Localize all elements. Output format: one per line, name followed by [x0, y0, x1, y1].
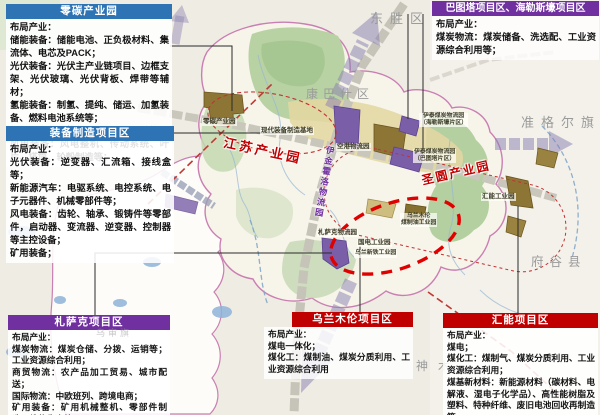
infobox-title: 零碳产业园 — [6, 4, 172, 19]
infobox-equipment-manufacturing: 装备制造项目区 布局产业： 光伏装备：逆变器、汇流箱、接线盒等； 新能源汽车：电… — [6, 126, 174, 263]
site-konggang-shape — [334, 106, 360, 148]
site-label-modern-equipment: 现代装备制造基地 — [260, 127, 314, 135]
industrial-planning-map: 东胜区 康巴什区 准格尔旗 府谷县 神木 乌审旗 江苏产业园 圣圆产业园 伊金霍… — [0, 0, 600, 415]
infobox-huineng: 汇能项目区 布局产业： 煤电； 煤化工：煤制气、煤炭分质利用、工业资源综合利用；… — [443, 313, 598, 415]
site-label-huineng-park: 汇能工业园 — [481, 193, 516, 201]
region-label-kangbashi: 康巴什区 — [306, 85, 374, 102]
infobox-title: 札萨克项目区 — [8, 315, 170, 330]
infobox-zhasake: 札萨克项目区 布局产业： 煤炭物流：煤炭仓储、分拨、运销等；工业资源综合利用； … — [8, 315, 170, 415]
infobox-body: 布局产业： 煤电； 煤化工：煤制气、煤炭分质利用、工业资源综合利用； 煤基新材料… — [443, 328, 598, 415]
infobox-batuta-hailesihao: 巴图塔项目区、海勒斯壕项目区 布局产业： 煤炭物流：煤炭储备、洗选配、工业资源综… — [432, 1, 599, 60]
infobox-wulanmulun: 乌兰木伦项目区 布局产业： 煤电一体化； 煤化工：煤制油、煤炭分质利用、工业资源… — [264, 312, 413, 379]
region-label-wushen: 乌审旗 — [96, 326, 132, 339]
site-label-zhasake-logistics: 札萨克物流园 — [317, 229, 358, 237]
region-label-dongsheng: 东胜区 — [370, 8, 430, 27]
site-label-yitai-hailesihao: 伊泰煤炭物流园 （海勒斯壕片区） — [419, 113, 468, 127]
infobox-title: 装备制造项目区 — [6, 126, 174, 141]
infobox-title: 乌兰木伦项目区 — [292, 312, 413, 327]
site-label-wulanmulun-fuel: 乌兰木伦 煤制油工业园 — [400, 213, 437, 227]
region-label-zhungeer: 准格尔旗 — [521, 112, 600, 131]
infobox-title: 巴图塔项目区、海勒斯壕项目区 — [432, 1, 599, 16]
site-label-lingtan: 零碳产业园 — [202, 118, 237, 126]
site-label-guodian: 国电工业园 — [357, 239, 392, 247]
site-label-yitai-batuta: 伊泰煤炭物流园 （巴图塔片区） — [413, 149, 456, 163]
infobox-body: 布局产业： 煤炭物流：煤炭储备、洗选配、工业资源综合利用等； — [432, 16, 599, 60]
infobox-body: 布局产业： 煤电一体化； 煤化工：煤制油、煤炭分质利用、工业资源综合利用 — [264, 327, 413, 379]
site-label-konggang: 空港物流园 — [336, 143, 371, 151]
infobox-body: 布局产业： 煤炭物流：煤炭仓储、分拨、运销等；工业资源综合利用； 商贸物流：农产… — [8, 330, 170, 415]
region-label-fugu: 府谷县 — [531, 251, 587, 270]
infobox-body: 布局产业： 光伏装备：逆变器、汇流箱、接线盒等； 新能源汽车：电驱系统、电控系统… — [6, 141, 174, 263]
infobox-title: 汇能项目区 — [443, 313, 598, 328]
site-label-wulanxintie: 乌兰新铁工业园 — [354, 250, 397, 258]
